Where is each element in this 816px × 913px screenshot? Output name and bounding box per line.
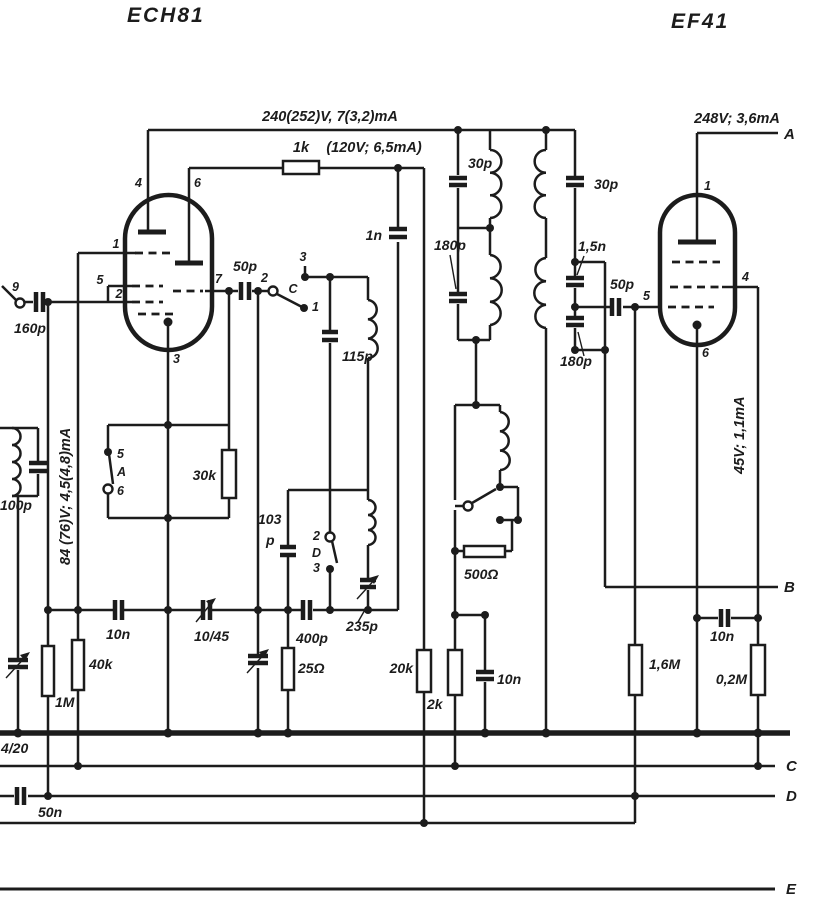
resistor-40k bbox=[72, 640, 84, 690]
resistor-1m-label: 1M bbox=[55, 694, 75, 710]
note-supply-main: 240(252)V, 7(3,2)mA bbox=[261, 109, 398, 125]
note-screen: (120V; 6,5mA) bbox=[326, 140, 422, 156]
resistor-30k-label: 30k bbox=[193, 467, 218, 483]
capacitor-180p-right bbox=[566, 318, 584, 325]
ech81-pin3-label: 3 bbox=[173, 352, 180, 366]
terminal-e: E bbox=[786, 881, 797, 898]
if-secondary-coil-2 bbox=[534, 258, 546, 328]
trimmer-10-45-label: 10/45 bbox=[194, 628, 229, 644]
capacitor-180p-left bbox=[449, 294, 467, 301]
switch-contacts bbox=[16, 287, 473, 542]
schematic-page: ECH81 EF41 240(252)V, 7(3,2)mA 1k (120V;… bbox=[0, 0, 816, 913]
cathode-dot bbox=[164, 318, 173, 327]
capacitor-103p-label-2: p bbox=[265, 532, 275, 548]
ech81-pin6-label: 6 bbox=[194, 176, 202, 190]
ef41-pin5-label: 5 bbox=[643, 289, 651, 303]
capacitor-160p bbox=[36, 292, 43, 312]
ech81-pin1-label: 1 bbox=[113, 237, 120, 251]
switch-d-contact2-label: 2 bbox=[312, 529, 320, 543]
trimmer-padder bbox=[248, 656, 268, 663]
ech81-pin9-label: 9 bbox=[12, 280, 19, 294]
terminal-d: D bbox=[786, 788, 797, 805]
resistor-40k-label: 40k bbox=[88, 656, 114, 672]
capacitor-10n-left bbox=[115, 600, 122, 620]
resistor-20k bbox=[417, 650, 431, 692]
capacitor-1n bbox=[389, 229, 407, 237]
capacitor-100p bbox=[29, 463, 47, 471]
capacitor-103p-label-1: 103 bbox=[258, 511, 282, 527]
ef41-pin6-label: 6 bbox=[702, 346, 710, 360]
capacitor-50p-ef41-label: 50p bbox=[610, 276, 635, 292]
wires-ef41-output bbox=[635, 287, 758, 823]
capacitor-50p-ech81 bbox=[241, 282, 249, 300]
note-screen-ef41: 45V; 1,1mA bbox=[732, 396, 748, 475]
capacitor-50p-ef41 bbox=[612, 298, 619, 316]
trimmer-4-20-label: 4/20 bbox=[0, 740, 28, 756]
capacitor-10n-right bbox=[721, 609, 728, 627]
resistor-0-2m-label: 0,2M bbox=[716, 671, 747, 687]
capacitor-1-5n bbox=[566, 278, 584, 285]
resistor-2k-label: 2k bbox=[426, 696, 444, 712]
terminal-c: C bbox=[786, 758, 798, 775]
contact-9-open bbox=[16, 299, 25, 308]
note-supply-ef41: 248V; 3,6mA bbox=[693, 111, 780, 127]
resistor-1k bbox=[283, 161, 319, 174]
ech81-pin2-label: 2 bbox=[115, 287, 123, 301]
cathode-dot bbox=[693, 321, 702, 330]
tube1-name: ECH81 bbox=[127, 4, 205, 27]
osc-coil-lower bbox=[368, 500, 376, 545]
capacitor-1-5n-label: 1,5n bbox=[578, 238, 606, 254]
capacitor-115p-label: 115p bbox=[342, 348, 373, 364]
switch-d-contact3-label: 3 bbox=[313, 561, 320, 575]
bottom-rails bbox=[0, 733, 790, 889]
terminal-b: B bbox=[784, 579, 795, 596]
capacitor-10n-left-label: 10n bbox=[106, 626, 130, 642]
capacitor-50p-ech81-label: 50p bbox=[233, 258, 258, 274]
capacitor-50n bbox=[17, 787, 24, 805]
ech81-pin4-label: 4 bbox=[134, 176, 142, 190]
tube-ech81 bbox=[108, 195, 212, 350]
ech81-pin5-label: 5 bbox=[97, 273, 105, 287]
capacitor-160p-label: 160p bbox=[14, 320, 46, 336]
resistor-25-label: 25Ω bbox=[297, 660, 325, 676]
capacitor-400p bbox=[303, 600, 310, 620]
tube2-name: EF41 bbox=[671, 10, 729, 33]
resistors bbox=[42, 161, 765, 696]
switch-arms bbox=[109, 294, 337, 563]
resistor-30k bbox=[222, 450, 236, 498]
if-primary-coil-2 bbox=[490, 255, 502, 325]
note-anode-ech: 84 (76)V; 4,5(4,8)mA bbox=[58, 428, 74, 565]
antenna-coil bbox=[12, 428, 21, 496]
resistor-1-6m bbox=[629, 645, 642, 695]
capacitor-10n-mid bbox=[476, 672, 494, 679]
switch-d-contact2-open bbox=[326, 533, 335, 542]
resistor-500 bbox=[464, 546, 505, 557]
switch-a-label: A bbox=[116, 465, 126, 479]
switch-c-contact2-open bbox=[269, 287, 278, 296]
ef41-pin1-label: 1 bbox=[704, 179, 711, 193]
resistor-1m bbox=[42, 646, 54, 696]
switch-d-label: D bbox=[312, 546, 321, 560]
radio-schematic: ECH81 EF41 240(252)V, 7(3,2)mA 1k (120V;… bbox=[0, 0, 816, 913]
capacitor-10n-right-label: 10n bbox=[710, 628, 734, 644]
ech81-pin7-label: 7 bbox=[215, 272, 223, 286]
resistor-2k bbox=[448, 650, 462, 695]
capacitor-180p-left-label: 180p bbox=[434, 237, 466, 253]
capacitor-180p-right-label: 180p bbox=[560, 353, 592, 369]
capacitor-30p-right-label: 30p bbox=[594, 176, 619, 192]
switch-c-contact3-label: 3 bbox=[300, 250, 307, 264]
capacitor-100p-label: 100p bbox=[0, 497, 32, 513]
trimmer-4-20 bbox=[8, 660, 28, 667]
resistor-25 bbox=[282, 648, 294, 690]
terminal-a: A bbox=[783, 126, 795, 143]
capacitor-115p bbox=[322, 332, 338, 340]
capacitor-400p-label: 400p bbox=[295, 630, 328, 646]
ef41-pin4-label: 4 bbox=[741, 270, 749, 284]
if-secondary-coil-1 bbox=[535, 150, 546, 218]
switch-a-contact5-label: 5 bbox=[117, 447, 125, 461]
capacitor-103p bbox=[280, 547, 296, 555]
wave-switch-open bbox=[464, 502, 473, 511]
capacitor-30p-left-label: 30p bbox=[468, 155, 493, 171]
switch-a-contact6-open bbox=[104, 485, 113, 494]
trimmer-235p-label: 235p bbox=[345, 618, 378, 634]
resistor-1-6m-label: 1,6M bbox=[649, 656, 680, 672]
resistor-20k-label: 20k bbox=[389, 660, 415, 676]
switch-a-contact6-label: 6 bbox=[117, 484, 125, 498]
wave-coil bbox=[500, 412, 510, 470]
resistor-0-2m bbox=[751, 645, 765, 695]
switch-c-label: C bbox=[288, 282, 298, 296]
switch-c-contact2-label: 2 bbox=[260, 271, 268, 285]
capacitor-1n-label: 1n bbox=[366, 227, 382, 243]
resistor-500-label: 500Ω bbox=[464, 566, 498, 582]
resistor-1k-label: 1k bbox=[293, 140, 310, 156]
capacitor-30p-left bbox=[449, 178, 467, 185]
switch-c-contact1-label: 1 bbox=[312, 300, 319, 314]
capacitor-50n-label: 50n bbox=[38, 804, 62, 820]
capacitor-30p-right bbox=[566, 178, 584, 185]
capacitor-10n-mid-label: 10n bbox=[497, 671, 521, 687]
